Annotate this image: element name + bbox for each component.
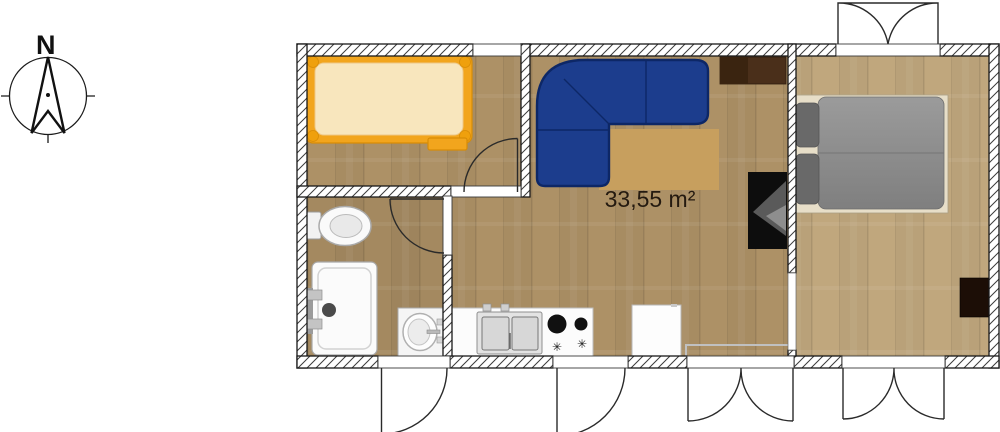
bedroom-french-doors — [843, 368, 944, 419]
kitchen-exterior-door — [557, 368, 625, 432]
tv-unit — [748, 172, 787, 249]
wall-smallbedroom-bottom — [297, 186, 451, 197]
coffee-table — [599, 129, 719, 190]
bathroom-door-threshold — [443, 196, 452, 255]
wall-bottom-5 — [945, 356, 999, 368]
wall-top-1 — [297, 44, 473, 56]
wall-living-bedroom-stub — [788, 350, 796, 356]
sideboard — [720, 57, 786, 84]
bedroom-top-door-threshold — [836, 44, 940, 56]
bed-post — [460, 57, 471, 68]
compass-center-dot — [46, 93, 50, 97]
stove-burner-small — [575, 318, 588, 331]
wall-right — [989, 44, 999, 368]
small-bedroom-window — [473, 44, 521, 56]
living-bedroom-opening — [788, 273, 796, 350]
washbasin — [398, 308, 446, 357]
washbasin-tap — [437, 337, 443, 343]
sink-basin-right — [512, 317, 538, 350]
stove-burner-large — [548, 315, 567, 334]
shower-knob — [306, 319, 322, 329]
bed-mattress — [315, 63, 463, 135]
shower-tray — [312, 262, 377, 355]
sink-tap — [483, 304, 491, 311]
sink-tap — [501, 304, 509, 311]
area-label: 33,55 m² — [605, 186, 696, 212]
wall-bottom-3 — [628, 356, 687, 368]
bed-post — [308, 131, 319, 142]
shower-knob — [306, 290, 322, 300]
shower-drain — [322, 303, 336, 317]
chest — [960, 278, 989, 317]
bedroom-french-door-threshold — [842, 356, 945, 368]
double-bed — [793, 95, 948, 213]
shower — [306, 262, 377, 355]
kitchen-counter — [448, 304, 593, 357]
floor-plan-canvas: N — [0, 0, 1000, 432]
bathroom-exterior-door — [382, 368, 448, 432]
fridge — [632, 304, 681, 356]
living-french-doors — [688, 368, 793, 421]
wall-left — [297, 44, 307, 368]
bathroom-ext-door-threshold — [378, 356, 450, 368]
single-bed — [306, 55, 472, 150]
toilet-bowl-inner — [330, 215, 362, 238]
compass-rose: N — [1, 30, 95, 143]
wall-living-bedroom — [788, 44, 796, 273]
wall-bottom-2 — [450, 356, 553, 368]
floor-plan-page: N — [0, 0, 1000, 432]
compass-north-label: N — [36, 30, 56, 60]
wall-bottom-4 — [794, 356, 842, 368]
bed-post — [308, 57, 319, 68]
bed-step — [428, 138, 467, 150]
fridge-body — [632, 305, 681, 356]
kitchen-ext-door-threshold — [553, 356, 628, 368]
sink-basin-left — [482, 317, 509, 350]
stove-knob-icon: ✳ — [552, 340, 562, 354]
washbasin-faucet — [427, 330, 440, 334]
living-french-door-threshold — [687, 356, 794, 368]
pillow — [796, 103, 819, 147]
wall-smallbedroom-right — [521, 44, 530, 197]
pillow — [796, 154, 819, 204]
small-bedroom-door-threshold — [451, 186, 521, 197]
wall-bathroom-right — [443, 255, 452, 356]
washbasin-tap — [437, 319, 443, 325]
stove-knob-icon: ✳ — [577, 337, 587, 351]
sideboard-shade — [720, 57, 748, 84]
wall-bottom-1 — [297, 356, 378, 368]
fridge-hinge — [671, 304, 677, 307]
bedroom-top-double-door — [838, 3, 938, 44]
